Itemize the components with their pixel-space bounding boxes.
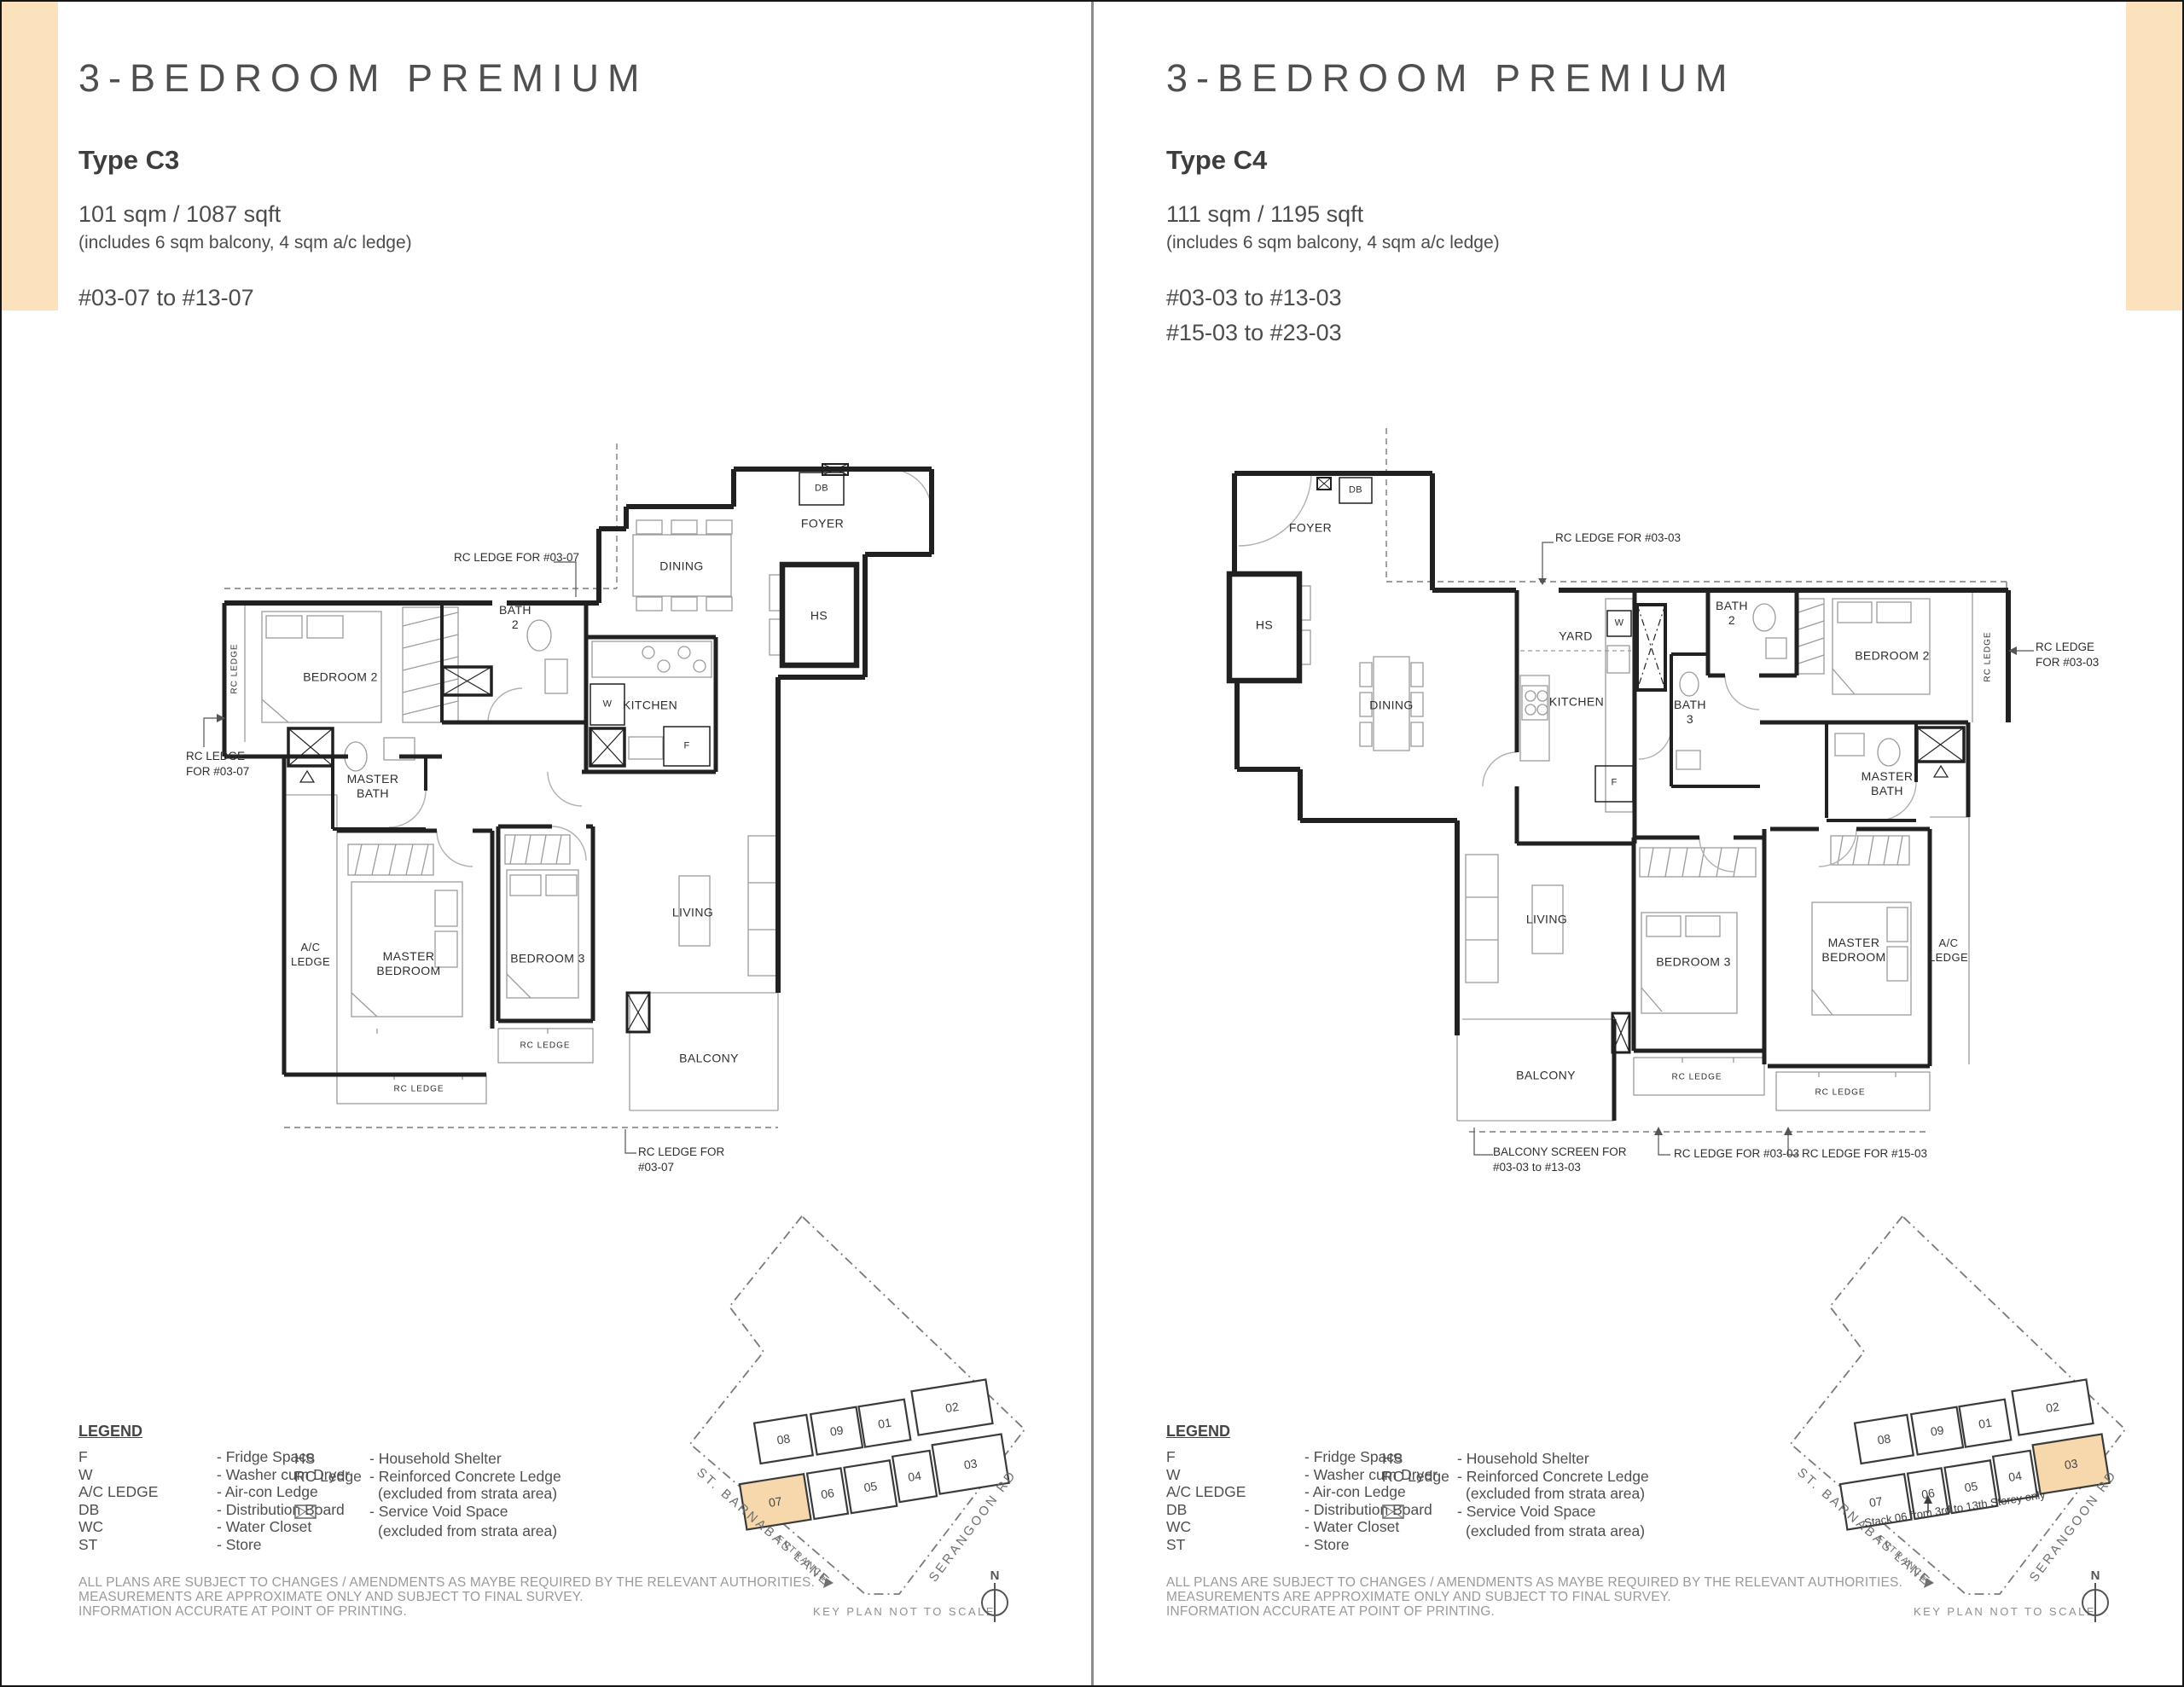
keyplan-unit-07: 07 xyxy=(1868,1494,1884,1510)
keyplan-unit-02: 02 xyxy=(944,1400,960,1415)
room-label-rc-ledge-west: RC LEDGE xyxy=(228,643,242,693)
room-label-db: DB xyxy=(815,482,828,496)
room-label-rc-ledge-mb: RC LEDGE xyxy=(1815,1086,1865,1100)
legend-abbr: ST xyxy=(1166,1536,1304,1554)
room-label-fridge: F xyxy=(1611,776,1617,791)
legend-title: LEGEND xyxy=(1166,1423,1712,1441)
legend-abbr: RC Ledge xyxy=(294,1468,369,1486)
floorplan-c4-drawing xyxy=(1222,428,2126,1213)
room-label-master-bath: MASTER BATH xyxy=(1862,769,1914,798)
keyplan-unit-03: 03 xyxy=(963,1456,979,1471)
floorplan-c3: BEDROOM 2 BATH 2 RC LEDGE KITCHEN W F DI… xyxy=(121,428,957,1196)
room-label-living: LIVING xyxy=(672,906,713,920)
header-c3: 3-BEDROOM PREMIUM Type C3 101 sqm / 1087… xyxy=(78,56,1017,316)
room-label-bedroom2: BEDROOM 2 xyxy=(303,670,378,685)
annotation-rc-ledge-bottom: RC LEDGE FOR #03-07 xyxy=(638,1145,724,1175)
legend-desc: - Reinforced Concrete Ledge xyxy=(1457,1468,1649,1486)
annotation-rc-ledge-left: RC LEDGE FOR #03-07 xyxy=(186,749,249,780)
legend-desc2: (excluded from strata area) xyxy=(378,1485,557,1503)
room-label-balcony: BALCONY xyxy=(679,1052,739,1066)
legend-abbr: A/C LEDGE xyxy=(1166,1483,1304,1501)
legend-abbr: HS xyxy=(294,1450,369,1468)
keyplan-unit-09: 09 xyxy=(829,1423,845,1438)
disclaimer-left: ALL PLANS ARE SUBJECT TO CHANGES / AMEND… xyxy=(78,1575,1017,1620)
accent-strip-left xyxy=(2,2,58,310)
legend-desc: - Service Void Space xyxy=(369,1503,508,1523)
legend-abbr: DB xyxy=(78,1501,217,1519)
legend-abbr: F xyxy=(78,1448,217,1466)
room-label-bath2: BATH 2 xyxy=(1716,599,1748,628)
legend-abbr: W xyxy=(1166,1466,1304,1484)
room-label-washer: W xyxy=(603,698,613,712)
keyplan-unit-02: 02 xyxy=(2045,1400,2060,1415)
room-label-kitchen: KITCHEN xyxy=(1549,695,1604,710)
keyplan-unit-01: 01 xyxy=(1978,1416,1993,1431)
room-label-bedroom3: BEDROOM 3 xyxy=(510,952,585,966)
room-label-master-bath: MASTER BATH xyxy=(347,772,399,801)
unit-range: #03-03 to #13-03 xyxy=(1166,281,2105,316)
unit-type: Type C4 xyxy=(1166,145,2105,176)
keyplan-unit-08: 08 xyxy=(775,1431,791,1446)
legend-desc2: (excluded from strata area) xyxy=(378,1522,557,1540)
keyplan-unit-03: 03 xyxy=(2064,1456,2079,1471)
annotation-balcony-screen: BALCONY SCREEN FOR #03-03 to #13-03 xyxy=(1493,1145,1627,1175)
legend-desc: - Service Void Space xyxy=(1457,1503,1595,1523)
room-label-balcony: BALCONY xyxy=(1516,1069,1576,1083)
keyplan-unit-01: 01 xyxy=(877,1416,892,1431)
room-label-dining: DINING xyxy=(659,559,703,574)
disclaimer-line: ALL PLANS ARE SUBJECT TO CHANGES / AMEND… xyxy=(78,1575,1017,1590)
legend-abbr: DB xyxy=(1166,1501,1304,1519)
floorplan-c3-drawing xyxy=(121,428,957,1196)
unit-range: #03-07 to #13-07 xyxy=(78,281,1017,316)
room-label-foyer: FOYER xyxy=(801,517,844,531)
annotation-rc-ledge-top: RC LEDGE FOR #03-03 xyxy=(1555,530,1681,546)
room-label-ac-ledge: A/C LEDGE xyxy=(291,940,330,969)
annotation-rc-ledge-0303: RC LEDGE FOR #03-03 xyxy=(1674,1146,1799,1162)
legend-abbr: WC xyxy=(78,1518,217,1536)
room-label-master-bedroom: MASTER BEDROOM xyxy=(1821,936,1885,965)
annotation-rc-ledge-1503: RC LEDGE FOR #15-03 xyxy=(1802,1146,1927,1162)
floorplan-c4: FOYER DB HS DINING YARD KITCHEN W F BATH… xyxy=(1222,428,2126,1213)
room-label-master-bedroom: MASTER BEDROOM xyxy=(376,949,440,978)
page-title: 3-BEDROOM PREMIUM xyxy=(78,56,1017,101)
room-label-rc-ledge-b3: RC LEDGE xyxy=(1671,1070,1722,1085)
disclaimer-line: MEASUREMENTS ARE APPROXIMATE ONLY AND SU… xyxy=(1166,1590,2105,1604)
room-label-living: LIVING xyxy=(1526,913,1567,927)
room-label-ac-ledge: A/C LEDGE xyxy=(1929,936,1968,965)
service-void-icon xyxy=(1382,1504,1404,1519)
legend-abbr: F xyxy=(1166,1448,1304,1466)
legend-desc: - Reinforced Concrete Ledge xyxy=(369,1468,561,1486)
room-label-foyer: FOYER xyxy=(1289,521,1332,536)
legend-abbr: ST xyxy=(78,1536,217,1554)
legend-left: LEGEND F- Fridge Space W- Washer cum Dry… xyxy=(78,1423,624,1554)
disclaimer-line: ALL PLANS ARE SUBJECT TO CHANGES / AMEND… xyxy=(1166,1575,2105,1590)
room-label-rc-ledge-east: RC LEDGE xyxy=(1981,631,1995,681)
keyplan-unit-06: 06 xyxy=(820,1486,835,1501)
header-c4: 3-BEDROOM PREMIUM Type C4 111 sqm / 1195… xyxy=(1166,56,2105,351)
keyplan-unit-07: 07 xyxy=(768,1494,783,1510)
disclaimer-line: INFORMATION ACCURATE AT POINT OF PRINTIN… xyxy=(1166,1604,2105,1619)
legend-abbr: RC Ledge xyxy=(1382,1468,1457,1486)
page-divider xyxy=(1091,2,1094,1685)
keyplan-unit-05: 05 xyxy=(1963,1479,1978,1494)
accent-strip-right xyxy=(2126,2,2182,310)
room-label-bath2: BATH 2 xyxy=(499,603,531,632)
disclaimer-line: INFORMATION ACCURATE AT POINT OF PRINTIN… xyxy=(78,1604,1017,1619)
legend-desc: - Store xyxy=(217,1536,262,1554)
unit-range: #15-03 to #23-03 xyxy=(1166,316,2105,351)
room-label-dining: DINING xyxy=(1369,699,1413,713)
room-label-washer: W xyxy=(1615,617,1624,631)
room-label-yard: YARD xyxy=(1559,629,1592,644)
service-void-icon xyxy=(294,1504,317,1519)
room-label-bedroom3: BEDROOM 3 xyxy=(1656,955,1731,970)
legend-abbr: A/C LEDGE xyxy=(78,1483,217,1501)
annotation-rc-ledge-top: RC LEDGE FOR #03-07 xyxy=(454,550,579,565)
keyplan-unit-09: 09 xyxy=(1930,1423,1945,1438)
keyplan-unit-04: 04 xyxy=(907,1469,922,1484)
room-label-hs: HS xyxy=(1256,618,1273,633)
room-label-rc-ledge-mb: RC LEDGE xyxy=(393,1082,444,1097)
disclaimer-right: ALL PLANS ARE SUBJECT TO CHANGES / AMEND… xyxy=(1166,1575,2105,1620)
legend-abbr: HS xyxy=(1382,1450,1457,1468)
unit-area: 111 sqm / 1195 sqft xyxy=(1166,201,2105,228)
keyplan-unit-04: 04 xyxy=(2007,1469,2023,1484)
disclaimer-line: MEASUREMENTS ARE APPROXIMATE ONLY AND SU… xyxy=(78,1590,1017,1604)
legend-desc2: (excluded from strata area) xyxy=(1466,1522,1645,1540)
legend-desc: - Household Shelter xyxy=(369,1450,502,1468)
legend-desc: - Household Shelter xyxy=(1457,1450,1589,1468)
room-label-bedroom2: BEDROOM 2 xyxy=(1855,649,1930,664)
brochure-page: 3-BEDROOM PREMIUM Type C3 101 sqm / 1087… xyxy=(0,0,2184,1687)
annotation-rc-ledge-right: RC LEDGE FOR #03-03 xyxy=(2036,640,2099,670)
room-label-bath3: BATH 3 xyxy=(1674,698,1706,727)
room-label-rc-ledge-b3: RC LEDGE xyxy=(520,1039,570,1053)
legend-abbr: W xyxy=(78,1466,217,1484)
unit-area: 101 sqm / 1087 sqft xyxy=(78,201,1017,228)
room-label-db: DB xyxy=(1349,484,1362,498)
page-title: 3-BEDROOM PREMIUM xyxy=(1166,56,2105,101)
room-label-kitchen: KITCHEN xyxy=(623,699,677,713)
legend-right: LEGEND F- Fridge Space W- Washer cum Dry… xyxy=(1166,1423,1712,1554)
keyplan-unit-05: 05 xyxy=(863,1479,878,1494)
room-label-fridge: F xyxy=(683,739,689,754)
legend-title: LEGEND xyxy=(78,1423,624,1441)
unit-area-note: (includes 6 sqm balcony, 4 sqm a/c ledge… xyxy=(1166,233,2105,253)
legend-desc2: (excluded from strata area) xyxy=(1466,1485,1645,1503)
unit-type: Type C3 xyxy=(78,145,1017,176)
legend-desc: - Store xyxy=(1304,1536,1350,1554)
legend-abbr: WC xyxy=(1166,1518,1304,1536)
keyplan-unit-08: 08 xyxy=(1876,1431,1891,1446)
unit-area-note: (includes 6 sqm balcony, 4 sqm a/c ledge… xyxy=(78,233,1017,253)
room-label-hs: HS xyxy=(810,609,828,623)
